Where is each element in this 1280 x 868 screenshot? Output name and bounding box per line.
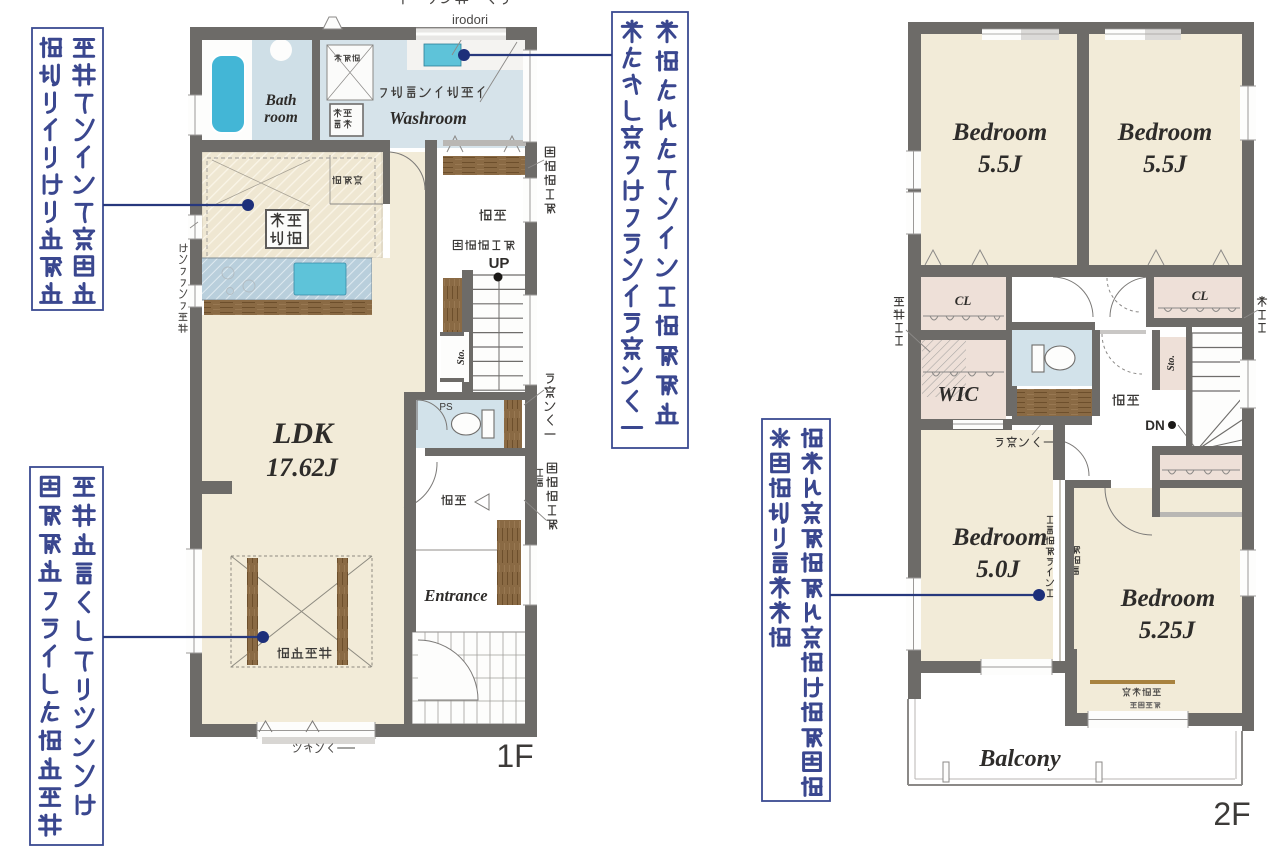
svg-text:Bath: Bath: [264, 92, 296, 109]
svg-text:WIC: WIC: [938, 382, 980, 406]
svg-text:Sto.: Sto.: [1166, 355, 1177, 371]
svg-text:Bedroom: Bedroom: [952, 524, 1047, 551]
svg-text:5.0J: 5.0J: [976, 556, 1021, 583]
svg-text:2F: 2F: [1213, 796, 1250, 832]
svg-text:Washroom: Washroom: [389, 108, 466, 128]
svg-text:room: room: [264, 109, 298, 126]
svg-text:irodori: irodori: [452, 12, 488, 27]
svg-text:Entrance: Entrance: [423, 586, 487, 605]
svg-text:Bedroom: Bedroom: [952, 119, 1047, 146]
svg-text:1F: 1F: [496, 738, 533, 774]
svg-text:5.5J: 5.5J: [1143, 151, 1188, 178]
svg-text:CL: CL: [1192, 288, 1209, 303]
svg-text:5.5J: 5.5J: [978, 151, 1023, 178]
svg-text:LDK: LDK: [272, 417, 335, 450]
svg-text:CL: CL: [955, 293, 972, 308]
svg-text:Balcony: Balcony: [978, 746, 1061, 772]
svg-text:17.62J: 17.62J: [266, 453, 339, 482]
svg-text:DN: DN: [1145, 418, 1165, 433]
svg-text:UP: UP: [489, 255, 510, 272]
svg-text:5.25J: 5.25J: [1139, 617, 1197, 644]
svg-text:Sto.: Sto.: [456, 349, 467, 365]
svg-text:Bedroom: Bedroom: [1120, 585, 1215, 612]
svg-text:Bedroom: Bedroom: [1117, 119, 1212, 146]
svg-text:PS: PS: [439, 402, 453, 413]
